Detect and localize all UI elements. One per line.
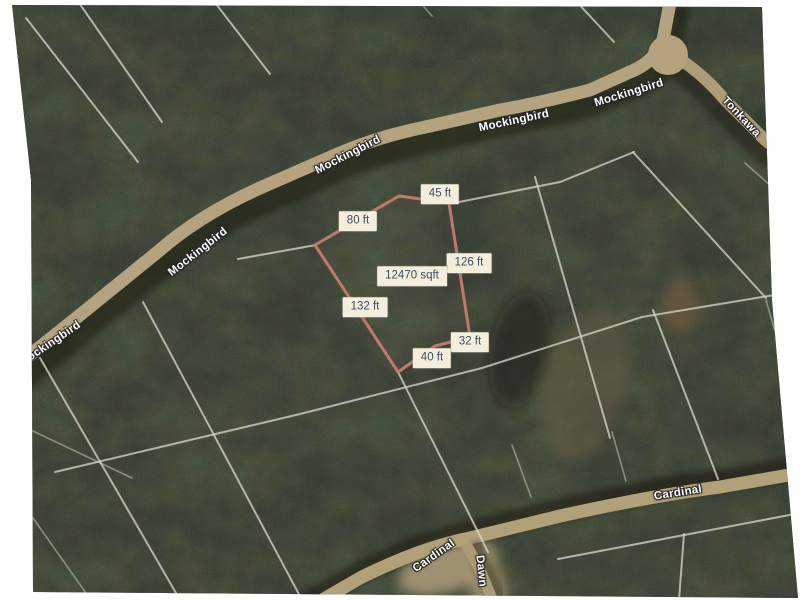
map-frame: MockingbirdMockingbirdMockingbirdMocking… <box>0 0 800 600</box>
satellite-map-canvas[interactable] <box>0 0 800 600</box>
listing-map-screenshot: MockingbirdMockingbirdMockingbirdMocking… <box>0 0 800 600</box>
